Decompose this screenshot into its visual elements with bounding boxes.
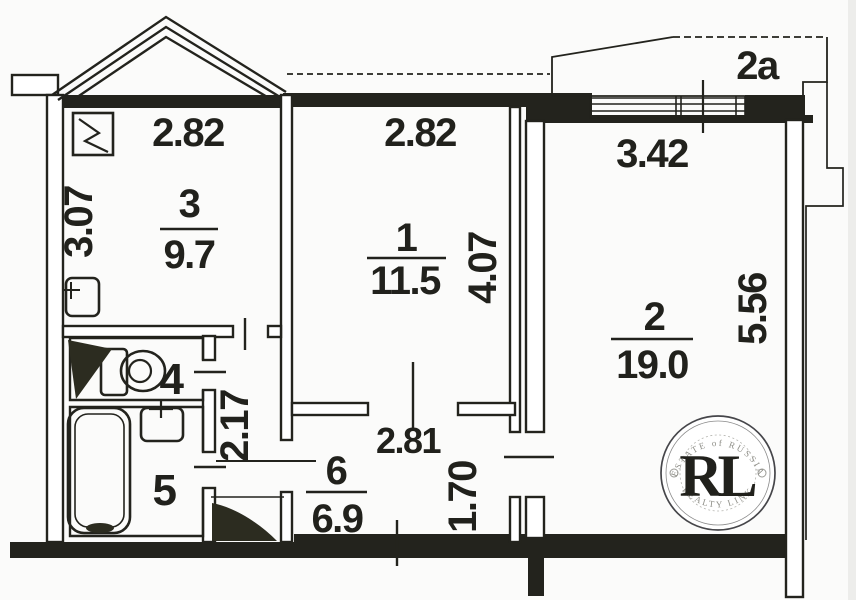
toilet-icon <box>101 349 165 395</box>
dim-corridor-depth: 2.17 <box>213 390 257 462</box>
wall-corridor-left-a <box>203 336 215 360</box>
watermark-initials: RL <box>679 443 755 509</box>
room2-area: 19.0 <box>616 343 688 387</box>
dim-kitchen-depth: 3.07 <box>57 186 101 258</box>
wall-room2-left-b <box>526 497 544 538</box>
wall-top-room1 <box>283 93 529 107</box>
balcony-label: 2a <box>736 44 780 88</box>
dim-kitchen-width: 2.82 <box>152 111 224 155</box>
wall-top-kitchen <box>58 95 285 108</box>
floor-plan-scan: 2.82 3.07 3 9.7 2.82 1 11.5 4.07 3.42 2 … <box>0 0 856 600</box>
wall-kitchen-room1-divider <box>281 95 292 440</box>
scan-edge <box>848 0 856 600</box>
room-kitchen-number: 3 <box>179 182 200 226</box>
watermark: ESTATE of RUSSIA REALTY LINK RL <box>661 416 775 530</box>
room2-number: 2 <box>644 295 665 339</box>
balcony-outline <box>552 37 827 96</box>
hall-area: 6.9 <box>311 497 362 541</box>
kitchen-sink-icon <box>62 278 99 316</box>
room1-number: 1 <box>396 216 418 260</box>
bathtub-icon <box>68 408 130 533</box>
hall-number: 6 <box>326 449 347 493</box>
dim-hall-width: 2.81 <box>376 420 442 461</box>
toilet-door-swing-icon <box>68 340 112 399</box>
wall-bottom <box>10 542 804 558</box>
entry-door-swing-icon <box>211 497 284 541</box>
wall-left <box>47 95 63 542</box>
wall-room1-right <box>510 107 520 432</box>
dim-room1-depth: 4.07 <box>461 232 505 304</box>
wall-stub-top-left <box>12 75 58 95</box>
floor-plan-drawing: 2.82 3.07 3 9.7 2.82 1 11.5 4.07 3.42 2 … <box>0 0 856 600</box>
dim-room1-width: 2.82 <box>384 111 456 155</box>
dim-hall-depth: 1.70 <box>441 461 485 533</box>
wall-room1-bottom-a <box>292 403 368 415</box>
wall-hall-right <box>510 497 520 542</box>
dim-room2-width: 3.42 <box>616 132 688 176</box>
wall-room2-right <box>786 120 803 597</box>
stove-icon <box>73 113 113 155</box>
exterior-contour-right <box>806 82 843 540</box>
wall-kitchen-bottom-b <box>268 326 281 337</box>
dim-room2-depth: 5.56 <box>731 273 775 345</box>
wall-stub-bottom-left <box>528 556 544 596</box>
toilet-number: 4 <box>160 355 185 404</box>
balcony-left-edge <box>552 37 673 96</box>
room1-area: 11.5 <box>370 259 441 303</box>
wall-corridor-hall-divider <box>281 492 292 542</box>
bathroom-number: 5 <box>153 466 177 515</box>
gable-roof <box>52 17 286 106</box>
room-kitchen-area: 9.7 <box>163 233 214 277</box>
balcony-right-edge <box>552 37 827 96</box>
wall-room2-left-a <box>526 121 544 432</box>
wall-room1-bottom-b <box>458 403 515 415</box>
